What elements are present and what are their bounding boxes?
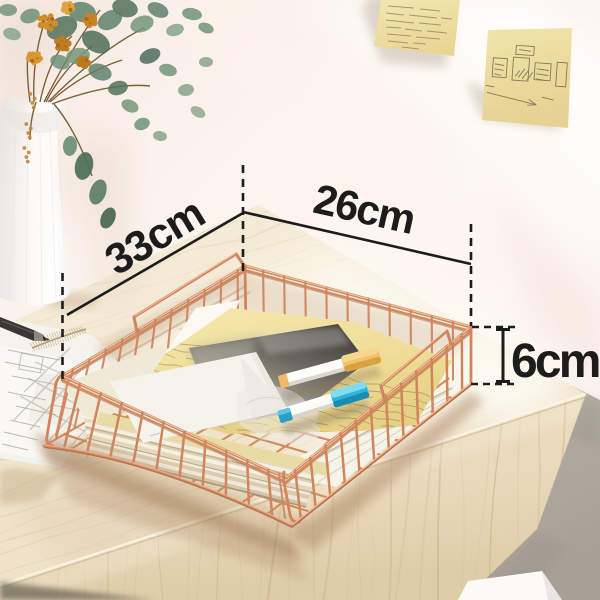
svg-text:6cm: 6cm [511,335,599,388]
